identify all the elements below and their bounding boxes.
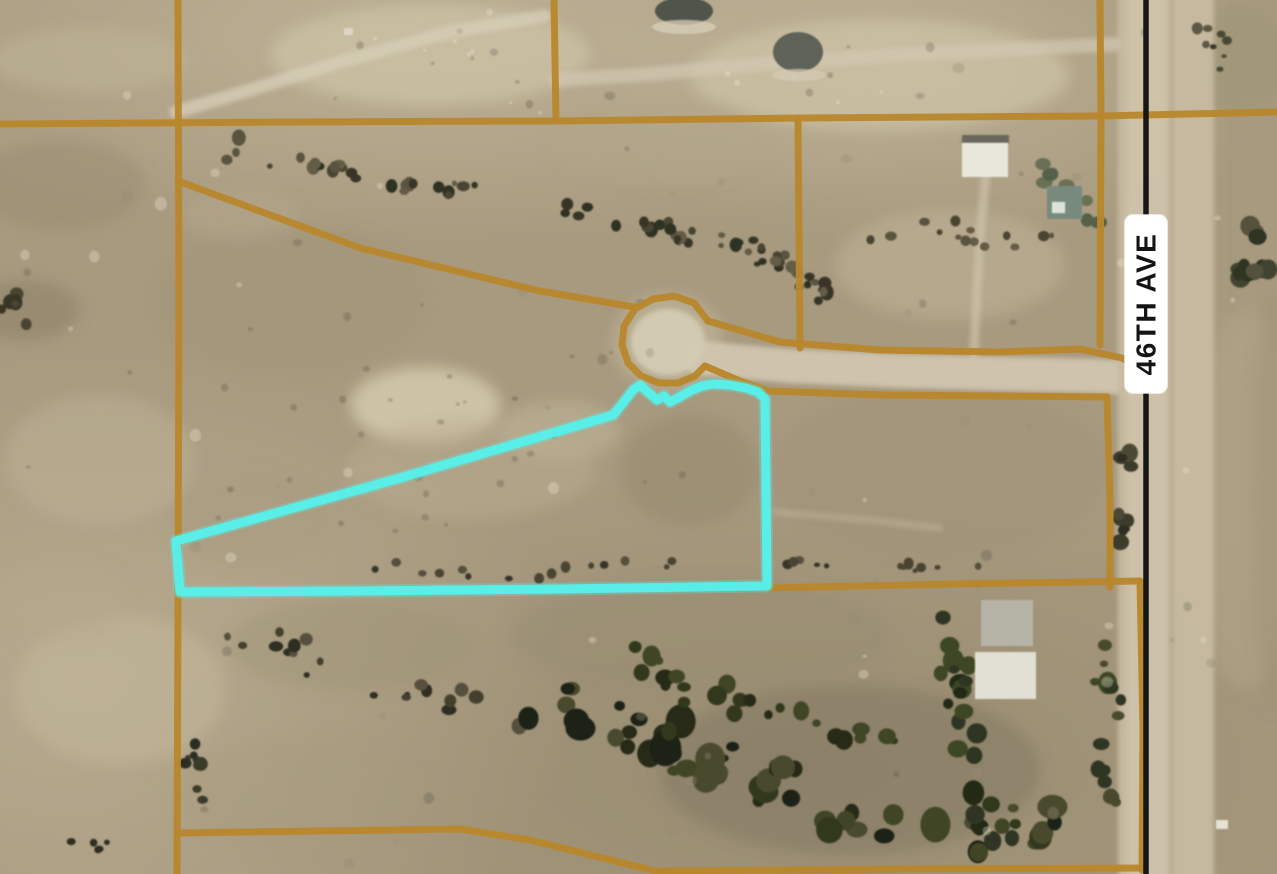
- small-structure-northwest: [344, 28, 353, 35]
- avenue-west-lot-line: [1140, 581, 1143, 870]
- mid-lot-line: [798, 121, 800, 348]
- north-lot-line-b: [1100, 0, 1101, 345]
- outbuilding-teal-skylight: [1052, 202, 1065, 213]
- pond-second-shore: [772, 69, 826, 81]
- road-label-46th-ave: 46TH AVE: [1125, 215, 1167, 393]
- pond-second: [773, 32, 823, 72]
- building-white-southeast: [975, 652, 1036, 699]
- specks-sw-corner: [67, 838, 110, 853]
- shrubs-in-parcel: [372, 556, 677, 584]
- map-canvas: [0, 0, 1277, 874]
- west-section-line: [177, 0, 179, 874]
- terrain-patches: [0, 5, 1277, 855]
- east-parcel-south-line: [766, 581, 1140, 588]
- street-to-46th: [700, 358, 1150, 379]
- cul-de-sac-surface: [631, 309, 705, 375]
- house-white-roof: [962, 143, 1008, 177]
- trees-east-of-ave: [1230, 216, 1277, 288]
- east-parcel-east-line: [1107, 397, 1110, 587]
- aerial-parcel-map[interactable]: 46TH AVE: [0, 0, 1277, 874]
- small-structure-southeast: [1216, 820, 1228, 829]
- shrubs-east-parcel: [782, 556, 981, 573]
- house-roof-edge: [962, 135, 1009, 144]
- road-label-text: 46TH AVE: [1130, 233, 1162, 376]
- pond-north-shore: [652, 20, 716, 34]
- building-gray-southeast: [981, 600, 1033, 646]
- north-lot-line-a: [554, 0, 556, 121]
